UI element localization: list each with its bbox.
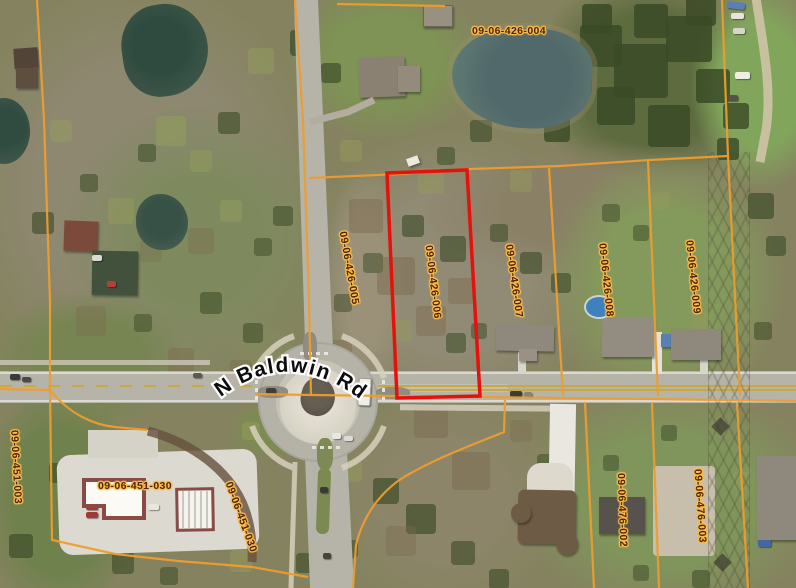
house-lobe xyxy=(511,503,531,523)
south-leg-median xyxy=(316,468,331,534)
pump-island xyxy=(86,504,98,510)
splitter-island xyxy=(303,332,317,362)
vehicle xyxy=(344,436,353,441)
center-line xyxy=(0,385,256,387)
vehicle xyxy=(758,540,771,547)
vehicle xyxy=(193,373,202,378)
house-wing xyxy=(398,66,420,92)
vehicle xyxy=(266,388,276,394)
crosswalk xyxy=(300,352,328,355)
pump-island xyxy=(86,512,98,518)
vehicle xyxy=(510,391,522,397)
powerline-corridor xyxy=(708,152,750,588)
vehicle xyxy=(92,255,102,261)
house-wing xyxy=(519,349,537,361)
crosswalk xyxy=(312,446,340,449)
vehicle xyxy=(733,28,745,34)
truck xyxy=(357,378,371,407)
house-lobe xyxy=(556,533,578,555)
sidewalk xyxy=(0,360,210,365)
house xyxy=(671,329,721,360)
house xyxy=(16,68,38,88)
gas-station-apron xyxy=(88,430,158,458)
road-edge-line xyxy=(0,372,796,374)
crosswalk xyxy=(255,380,258,400)
house xyxy=(13,47,38,69)
vehicle xyxy=(323,553,331,559)
vehicle xyxy=(107,281,116,287)
splitter-island xyxy=(317,438,333,470)
parcel-label: 09-06-476-002 xyxy=(615,473,630,547)
vehicle xyxy=(320,487,328,493)
vehicle xyxy=(731,13,744,19)
vehicle xyxy=(22,377,31,382)
trailer xyxy=(524,392,532,397)
pond xyxy=(136,194,188,250)
shed xyxy=(423,5,453,27)
vehicle xyxy=(10,374,20,380)
house xyxy=(496,324,554,351)
scrub-texture xyxy=(0,0,2,2)
pond xyxy=(449,24,594,131)
parcel-label: 09-06-426-004 xyxy=(472,25,546,37)
house xyxy=(757,456,796,540)
vehicle xyxy=(332,433,341,439)
vehicle xyxy=(728,95,738,101)
crosswalk xyxy=(382,380,385,400)
road-edge-line xyxy=(0,400,796,402)
aerial-map-canvas[interactable]: N Baldwin Rd 09-06-426-004 09-06-426-005… xyxy=(0,0,796,588)
trailer xyxy=(735,72,750,79)
vehicle xyxy=(148,504,159,510)
house xyxy=(602,317,654,357)
parcel-label: 09-06-451-030 xyxy=(98,480,172,492)
house xyxy=(63,220,98,251)
